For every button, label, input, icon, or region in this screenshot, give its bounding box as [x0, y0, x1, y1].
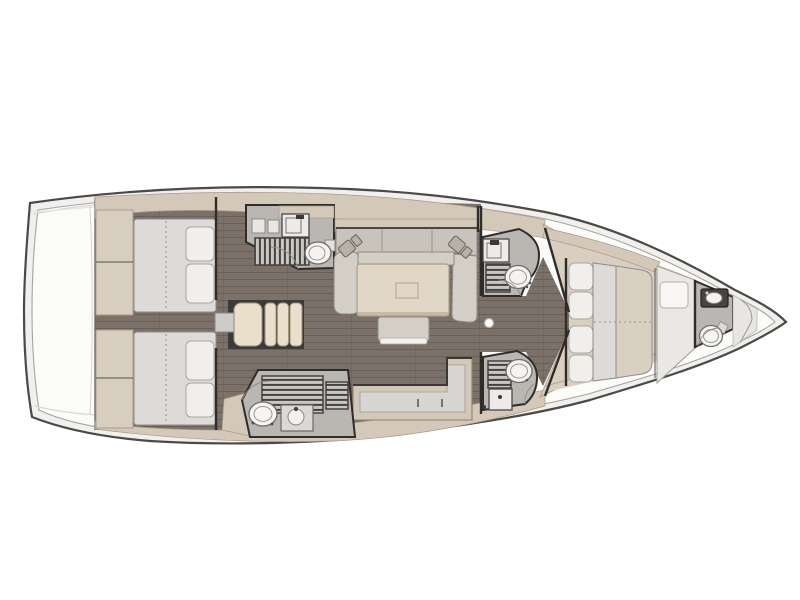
sink [483, 239, 509, 262]
pillow [186, 264, 214, 303]
sofa-arm-left [334, 252, 360, 314]
toilet [249, 402, 277, 426]
aft-cabin-upper [96, 210, 216, 315]
lower-aft-head [242, 370, 355, 437]
shower-grate-small [326, 382, 348, 409]
aft-cabin-lower [96, 330, 216, 428]
toilet [505, 266, 531, 289]
pillow [569, 292, 593, 319]
mid-head-lower [482, 351, 537, 410]
salon-table [357, 264, 449, 316]
pillow [186, 341, 214, 380]
wardrobe [96, 330, 133, 428]
faucet [294, 407, 298, 411]
ottoman [378, 317, 429, 344]
aft-head [246, 205, 335, 269]
pillow [186, 227, 214, 261]
pillow [569, 263, 593, 290]
cabinet [252, 219, 265, 233]
sink [701, 289, 728, 307]
companionway-steps [215, 300, 304, 349]
toilet [506, 360, 532, 383]
faucet [706, 292, 709, 295]
floor-plan-canvas: Overhead interior deck plan of a sailing… [0, 0, 800, 600]
step [234, 303, 262, 346]
pillow [569, 355, 593, 382]
faucet [490, 240, 499, 245]
pillow [569, 326, 593, 353]
sink [489, 389, 512, 410]
pillow [186, 383, 214, 417]
yacht-floor-plan [0, 0, 800, 600]
step [265, 303, 276, 346]
seat-cushions [358, 252, 454, 265]
faucet [498, 395, 502, 399]
shower-grate [255, 238, 309, 265]
step [290, 303, 302, 346]
mast-post [485, 319, 494, 328]
step-platform [215, 313, 234, 332]
step [278, 303, 289, 346]
sink [281, 405, 313, 431]
cabinet [268, 220, 279, 233]
faucet [296, 215, 304, 219]
sink [282, 214, 309, 237]
shower-tray [660, 282, 688, 308]
sofa-chaise-right [452, 254, 477, 322]
